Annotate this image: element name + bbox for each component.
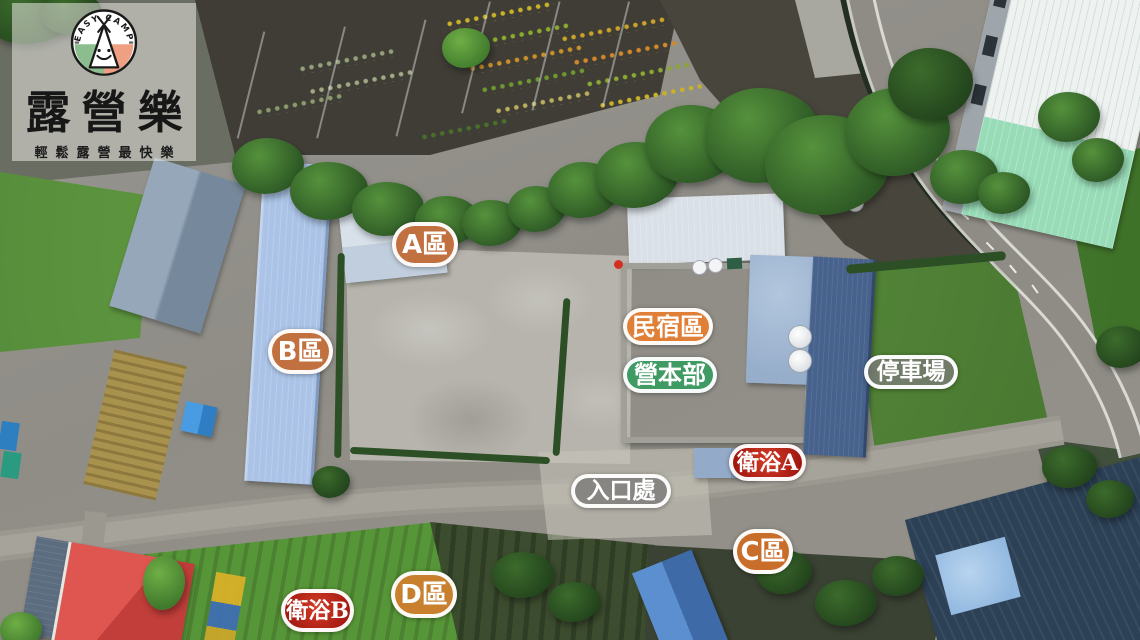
easycamp-logo[interactable]: EASY CAMP 露營樂 輕鬆露營最快樂 — [12, 3, 196, 161]
entrance-label[interactable]: 入口處 — [571, 474, 671, 508]
guesthouse-label[interactable]: 民宿區 — [623, 308, 713, 345]
logo-subtitle: 輕鬆露營最快樂 — [26, 142, 181, 161]
zone-b-label[interactable]: B區 — [268, 329, 333, 374]
rooftop-tank — [788, 349, 812, 373]
bath-a-label[interactable]: 衛浴A — [729, 444, 806, 481]
building-blue-shed — [180, 401, 218, 437]
hq-label[interactable]: 營本部 — [623, 357, 717, 393]
rooftop-green-box — [727, 258, 743, 270]
easycamp-logo-icon: EASY CAMP — [64, 7, 144, 78]
tree — [1096, 326, 1140, 368]
red-marker-dot — [614, 260, 623, 269]
rooftop-tank-small — [692, 260, 707, 275]
zone-c-label[interactable]: C區 — [733, 529, 793, 574]
rooftop-tank-small — [708, 258, 723, 273]
bush — [0, 612, 42, 640]
zone-d-label[interactable]: D區 — [391, 571, 457, 618]
rooftop-tank — [788, 325, 812, 349]
parking-label[interactable]: 停車場 — [864, 355, 958, 389]
bath-b-label[interactable]: 衛浴B — [281, 589, 354, 632]
zone-a-label[interactable]: A區 — [392, 222, 458, 267]
building-navy-strip-roof — [803, 256, 876, 457]
campground-aerial-map: A區 B區 民宿區 營本部 停車場 衛浴A 入口處 C區 D區 衛浴B EASY… — [0, 0, 1140, 640]
teal-dumpster — [0, 451, 21, 479]
logo-title: 露營樂 — [14, 76, 193, 141]
